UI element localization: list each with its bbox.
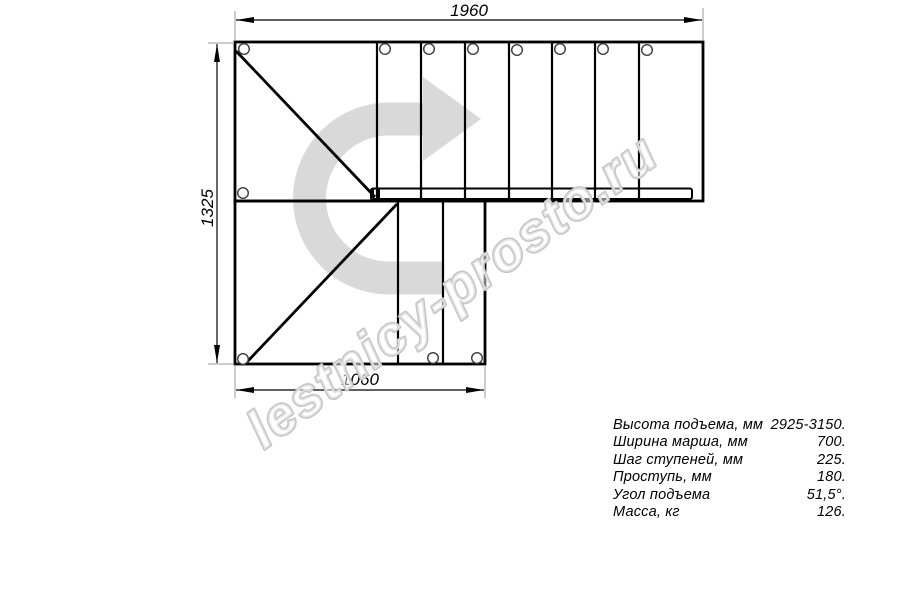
mounting-hole xyxy=(642,45,653,56)
spec-value: 700. xyxy=(817,434,846,451)
spec-row: Масса, кг 126. xyxy=(613,504,846,521)
spec-label: Угол подъема xyxy=(613,487,710,504)
direction-arrow xyxy=(310,77,482,278)
mounting-hole xyxy=(238,188,249,199)
mounting-hole xyxy=(239,44,250,55)
spec-value: 180. xyxy=(817,469,846,486)
spec-label: Проступь, мм xyxy=(613,469,712,486)
dimension-arrowhead xyxy=(214,44,220,62)
dimension-arrowhead xyxy=(684,17,702,23)
dimension-left: 1325 xyxy=(198,43,233,364)
stair-drawing-page: 1960 1325 1060 lestnicy-prosto.ru Высота… xyxy=(0,0,900,600)
spec-row: Ширина марша, мм 700. xyxy=(613,434,846,451)
dimension-left-value: 1325 xyxy=(198,189,217,227)
mounting-hole xyxy=(428,353,439,364)
spec-value: 126. xyxy=(817,504,846,521)
dimension-top: 1960 xyxy=(235,1,703,40)
spec-row: Шаг ступеней, мм 225. xyxy=(613,452,846,469)
mounting-hole xyxy=(512,45,523,56)
spec-label: Масса, кг xyxy=(613,504,680,521)
dimension-arrowhead xyxy=(236,17,254,23)
mounting-hole xyxy=(472,353,483,364)
dimension-arrowhead xyxy=(466,387,484,393)
mounting-hole xyxy=(380,44,391,55)
dimension-top-value: 1960 xyxy=(450,1,488,20)
mounting-hole xyxy=(424,44,435,55)
mounting-hole xyxy=(598,44,609,55)
spec-row: Угол подъема 51,5°. xyxy=(613,487,846,504)
direction-arrow-head xyxy=(423,77,481,161)
spec-table: Высота подъема, мм 2925-3150. Ширина мар… xyxy=(613,417,846,521)
spec-label: Ширина марша, мм xyxy=(613,434,748,451)
spec-value: 225. xyxy=(817,452,846,469)
spec-row: Высота подъема, мм 2925-3150. xyxy=(613,417,846,434)
mounting-hole xyxy=(555,44,566,55)
mounting-hole xyxy=(468,44,479,55)
mounting-hole xyxy=(238,354,249,365)
dimension-arrowhead xyxy=(214,345,220,363)
spec-row: Проступь, мм 180. xyxy=(613,469,846,486)
spec-label: Высота подъема, мм xyxy=(613,417,763,434)
dimension-arrowhead xyxy=(236,387,254,393)
spec-value: 51,5°. xyxy=(807,487,846,504)
spec-value: 2925-3150. xyxy=(771,417,846,434)
spec-label: Шаг ступеней, мм xyxy=(613,452,743,469)
